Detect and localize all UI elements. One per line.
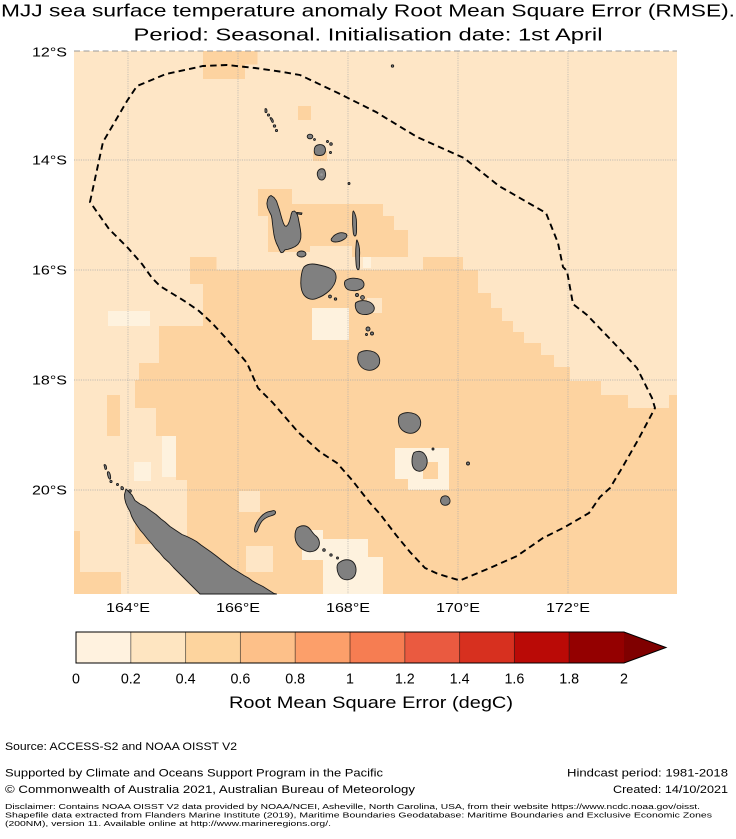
svg-text:Source: ACCESS-S2 and NOAA OIS: Source: ACCESS-S2 and NOAA OISST V2 — [5, 741, 237, 753]
svg-text:0: 0 — [72, 672, 80, 688]
svg-text:1.8: 1.8 — [559, 672, 579, 688]
svg-text:166°E: 166°E — [216, 600, 260, 615]
svg-text:1.6: 1.6 — [504, 672, 524, 688]
svg-text:1.4: 1.4 — [450, 672, 470, 688]
svg-text:MJJ sea surface temperature an: MJJ sea surface temperature anomaly Root… — [1, 1, 735, 21]
svg-text:18°S: 18°S — [32, 373, 67, 388]
svg-text:Hindcast period: 1981-2018: Hindcast period: 1981-2018 — [567, 768, 728, 780]
svg-text:2: 2 — [620, 672, 628, 688]
svg-text:168°E: 168°E — [326, 600, 370, 615]
svg-text:0.2: 0.2 — [121, 672, 141, 688]
svg-text:20°S: 20°S — [32, 483, 67, 498]
svg-text:14°S: 14°S — [32, 153, 67, 168]
svg-text:1: 1 — [346, 672, 354, 688]
svg-text:0.8: 0.8 — [285, 672, 305, 688]
svg-text:(200NM), version 11. Available: (200NM), version 11. Available online at… — [5, 819, 331, 828]
svg-text:164°E: 164°E — [106, 600, 150, 615]
svg-text:16°S: 16°S — [32, 263, 67, 278]
svg-text:Created: 14/10/2021: Created: 14/10/2021 — [613, 784, 728, 796]
svg-text:0.6: 0.6 — [230, 672, 250, 688]
svg-text:0.4: 0.4 — [176, 672, 196, 688]
svg-text:172°E: 172°E — [546, 600, 590, 615]
svg-text:Period: Seasonal. Initialisati: Period: Seasonal. Initialisation date: 1… — [134, 25, 603, 45]
svg-text:© Commonwealth of Australia 20: © Commonwealth of Australia 2021, Austra… — [5, 784, 415, 796]
svg-text:1.2: 1.2 — [395, 672, 415, 688]
svg-text:Root Mean Square Error (degC): Root Mean Square Error (degC) — [229, 694, 513, 712]
svg-text:Supported by Climate and Ocean: Supported by Climate and Oceans Support … — [5, 768, 383, 780]
svg-text:170°E: 170°E — [436, 600, 480, 615]
svg-text:12°S: 12°S — [32, 45, 67, 60]
